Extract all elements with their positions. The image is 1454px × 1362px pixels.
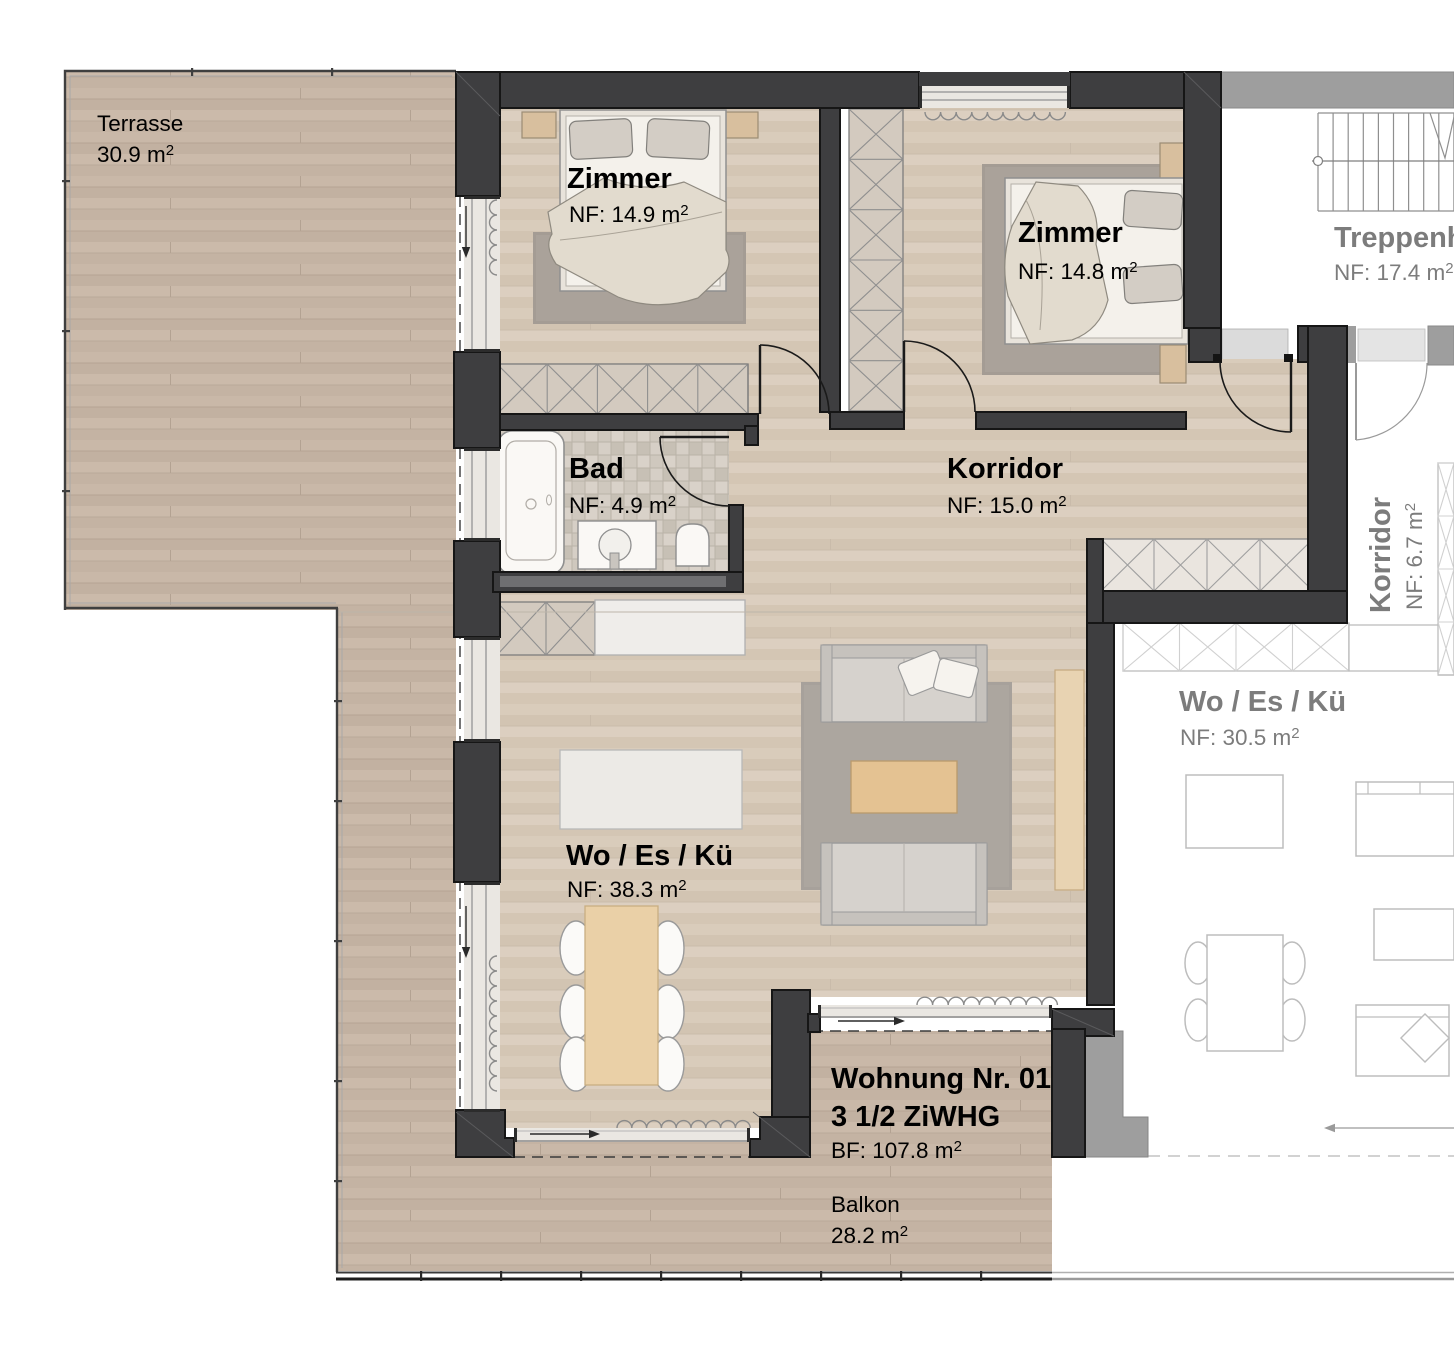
svg-text:NF: 14.8 m2: NF: 14.8 m2 bbox=[1018, 259, 1138, 284]
svg-text:Treppenhaus: Treppenhaus bbox=[1334, 222, 1454, 254]
svg-text:NF: 38.3 m2: NF: 38.3 m2 bbox=[567, 877, 687, 902]
svg-text:Korridor: Korridor bbox=[1365, 497, 1397, 613]
svg-text:NF: 4.9 m2: NF: 4.9 m2 bbox=[569, 493, 676, 518]
svg-text:NF: 6.7 m2: NF: 6.7 m2 bbox=[1402, 503, 1427, 610]
svg-text:Bad: Bad bbox=[569, 453, 624, 485]
svg-text:Zimmer: Zimmer bbox=[1018, 217, 1123, 249]
svg-text:Korridor: Korridor bbox=[947, 453, 1063, 485]
svg-text:BF: 107.8 m2: BF: 107.8 m2 bbox=[831, 1138, 962, 1163]
svg-text:NF: 15.0 m2: NF: 15.0 m2 bbox=[947, 493, 1067, 518]
svg-text:Zimmer: Zimmer bbox=[567, 163, 672, 195]
svg-text:30.9 m2: 30.9 m2 bbox=[97, 142, 174, 167]
svg-text:Terrasse: Terrasse bbox=[97, 111, 183, 136]
svg-text:Wohnung Nr. 01: Wohnung Nr. 01 bbox=[831, 1063, 1051, 1095]
svg-text:3 1/2 ZiWHG: 3 1/2 ZiWHG bbox=[831, 1101, 1000, 1133]
svg-text:NF: 17.4 m2: NF: 17.4 m2 bbox=[1334, 260, 1454, 285]
svg-text:Wo / Es / Kü: Wo / Es / Kü bbox=[566, 840, 733, 872]
svg-text:28.2 m2: 28.2 m2 bbox=[831, 1223, 908, 1248]
svg-text:Wo / Es / Kü: Wo / Es / Kü bbox=[1179, 686, 1346, 718]
svg-text:Balkon: Balkon bbox=[831, 1192, 900, 1217]
svg-text:NF: 30.5 m2: NF: 30.5 m2 bbox=[1180, 725, 1300, 750]
svg-text:NF: 14.9 m2: NF: 14.9 m2 bbox=[569, 202, 689, 227]
